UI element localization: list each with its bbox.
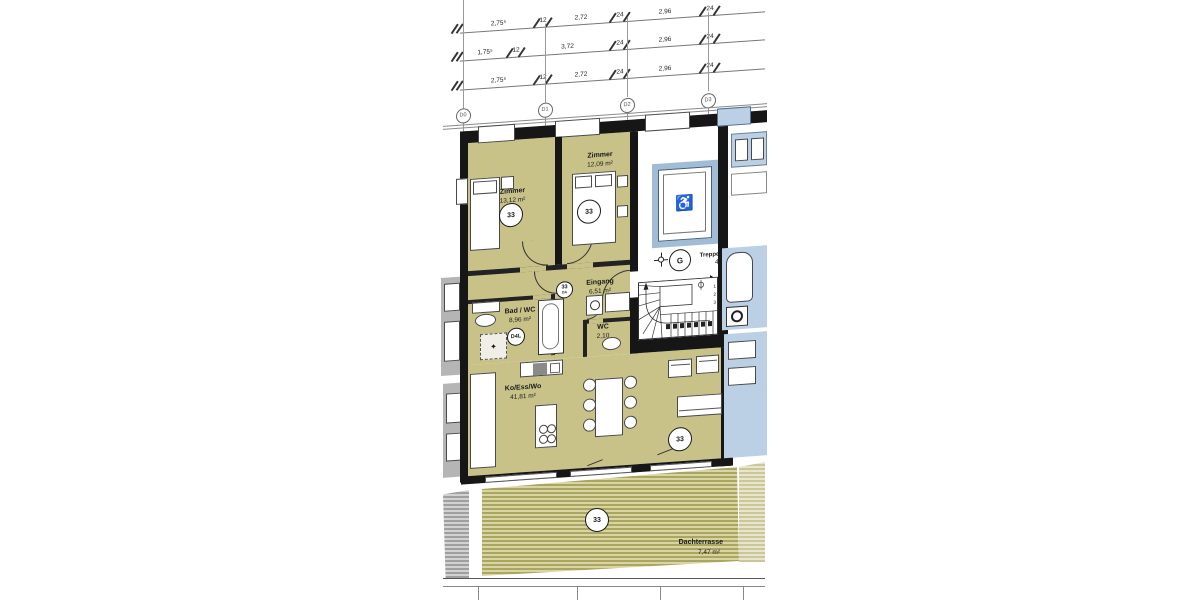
burner — [547, 434, 556, 444]
survey-point — [654, 252, 668, 267]
dim-value: 1,75⁵ — [460, 47, 510, 57]
nightstand — [617, 175, 628, 188]
neighbor-window — [751, 137, 764, 160]
pillow — [575, 175, 592, 188]
facade-mullion — [743, 586, 744, 600]
facade-line — [443, 578, 765, 579]
neighbor-glass — [724, 331, 767, 458]
sofa — [677, 393, 722, 417]
facade-line — [443, 586, 765, 587]
armchair-line — [699, 360, 717, 362]
neighbor-glass — [731, 131, 767, 168]
room-area: 12,09 m² — [587, 160, 613, 169]
sofa-line — [679, 407, 721, 411]
wheelchair-icon: ♿ — [663, 171, 706, 234]
neighbor-roof-strip — [443, 490, 469, 578]
neighbor-window — [444, 283, 460, 312]
kitchen-sink — [533, 363, 547, 376]
survey-circle — [658, 256, 664, 262]
neighbor-window — [735, 139, 748, 162]
neighbor-window — [446, 433, 461, 462]
grid-label: D0 — [459, 112, 466, 118]
room-name: Zimmer — [500, 187, 525, 196]
unit-number: 33 — [507, 211, 515, 219]
terrace-continuation — [739, 462, 765, 562]
kitchen-counter — [520, 359, 563, 377]
neighbor-bath — [722, 245, 767, 330]
wardrobe — [605, 292, 630, 313]
pillow — [595, 174, 612, 187]
wall — [555, 137, 562, 265]
neighbor-washing-machine — [726, 306, 748, 328]
grid-label: D2 — [623, 102, 630, 108]
grid-bubble: D2 — [620, 97, 635, 113]
window — [555, 118, 600, 138]
window — [645, 112, 690, 132]
room-name: WC — [597, 323, 609, 331]
facade-mullion — [577, 586, 578, 600]
neighbor-bathtub — [726, 251, 753, 303]
burner — [547, 424, 556, 434]
unit-number: 33 — [585, 208, 593, 216]
kitchen-island — [535, 404, 557, 449]
neighbor-window — [728, 340, 756, 360]
floorplan-sheet: 2,75⁵ 12 2,72 24 2,96 24 1,75⁵ 12 3,72 2… — [0, 0, 1200, 600]
room-label-dachterrasse: Dachterrasse — [645, 539, 723, 546]
level-letter: G — [677, 256, 683, 265]
unit-number: 33 — [593, 517, 601, 524]
room-name: Ko/Ess/Wo — [505, 383, 541, 393]
unit-sub: DA — [562, 290, 567, 295]
washing-machine-drum — [731, 310, 743, 323]
room-name: Zimmer — [587, 151, 612, 160]
dim-value: 24 — [690, 4, 730, 14]
room-area: 8,96 m² — [509, 316, 531, 325]
bath-cabinet — [472, 301, 500, 314]
room-name: Bad / WC — [505, 306, 536, 315]
washing-machine — [586, 295, 603, 316]
bathtub-basin — [542, 303, 559, 350]
room-area-value: 7,47 m² — [698, 549, 720, 556]
washing-machine-drum — [590, 300, 600, 311]
grid-line — [545, 24, 546, 103]
door-code: D4L — [511, 333, 521, 340]
armchair — [696, 355, 719, 375]
room-name: Dachterrasse — [679, 539, 723, 546]
neighbor-panel — [731, 171, 767, 196]
floorplan: 2,75⁵ 12 2,72 24 2,96 24 1,75⁵ 12 3,72 2… — [455, 103, 767, 485]
dining-table — [595, 377, 623, 437]
wheelchair-glyph: ♿ — [675, 193, 694, 212]
stair-void — [660, 284, 692, 306]
elevator-cab: ♿ — [658, 166, 712, 242]
neighbor-window — [444, 321, 460, 362]
unit-number: 33 — [676, 435, 684, 443]
nightstand — [617, 205, 628, 218]
unit-marker: 33 — [585, 508, 609, 532]
grid-line — [463, 0, 464, 108]
neighbor-window — [728, 366, 756, 386]
dim-value: 24 — [690, 32, 730, 42]
shower: ✦ — [480, 332, 507, 360]
grid-line — [627, 18, 628, 97]
grid-bubble: D1 — [538, 102, 553, 118]
room-area: 41,81 m² — [510, 392, 536, 401]
armchair-line — [671, 364, 690, 366]
facade-mullion — [478, 586, 479, 600]
dim-value: 24 — [690, 61, 730, 71]
room-area: 13,12 m² — [500, 196, 526, 205]
grid-bubble: D0 — [456, 107, 471, 123]
kitchen-appliance — [550, 363, 560, 374]
room-name: Eingang — [586, 278, 614, 287]
window — [478, 124, 515, 144]
neighbor-window — [446, 393, 461, 424]
grid-line — [708, 12, 709, 91]
staircase: 1 2 3 — [638, 277, 718, 341]
window — [456, 178, 468, 205]
armchair — [668, 358, 692, 378]
window-glass — [717, 106, 751, 126]
grid-label: D1 — [541, 106, 548, 112]
room-area: 7,47 m² — [645, 549, 720, 556]
sideboard — [470, 372, 496, 469]
elevator-shaft: ♿ — [652, 160, 718, 249]
facade-mullion — [660, 586, 661, 600]
grid-label: D3 — [704, 97, 711, 103]
bathtub — [538, 298, 564, 355]
